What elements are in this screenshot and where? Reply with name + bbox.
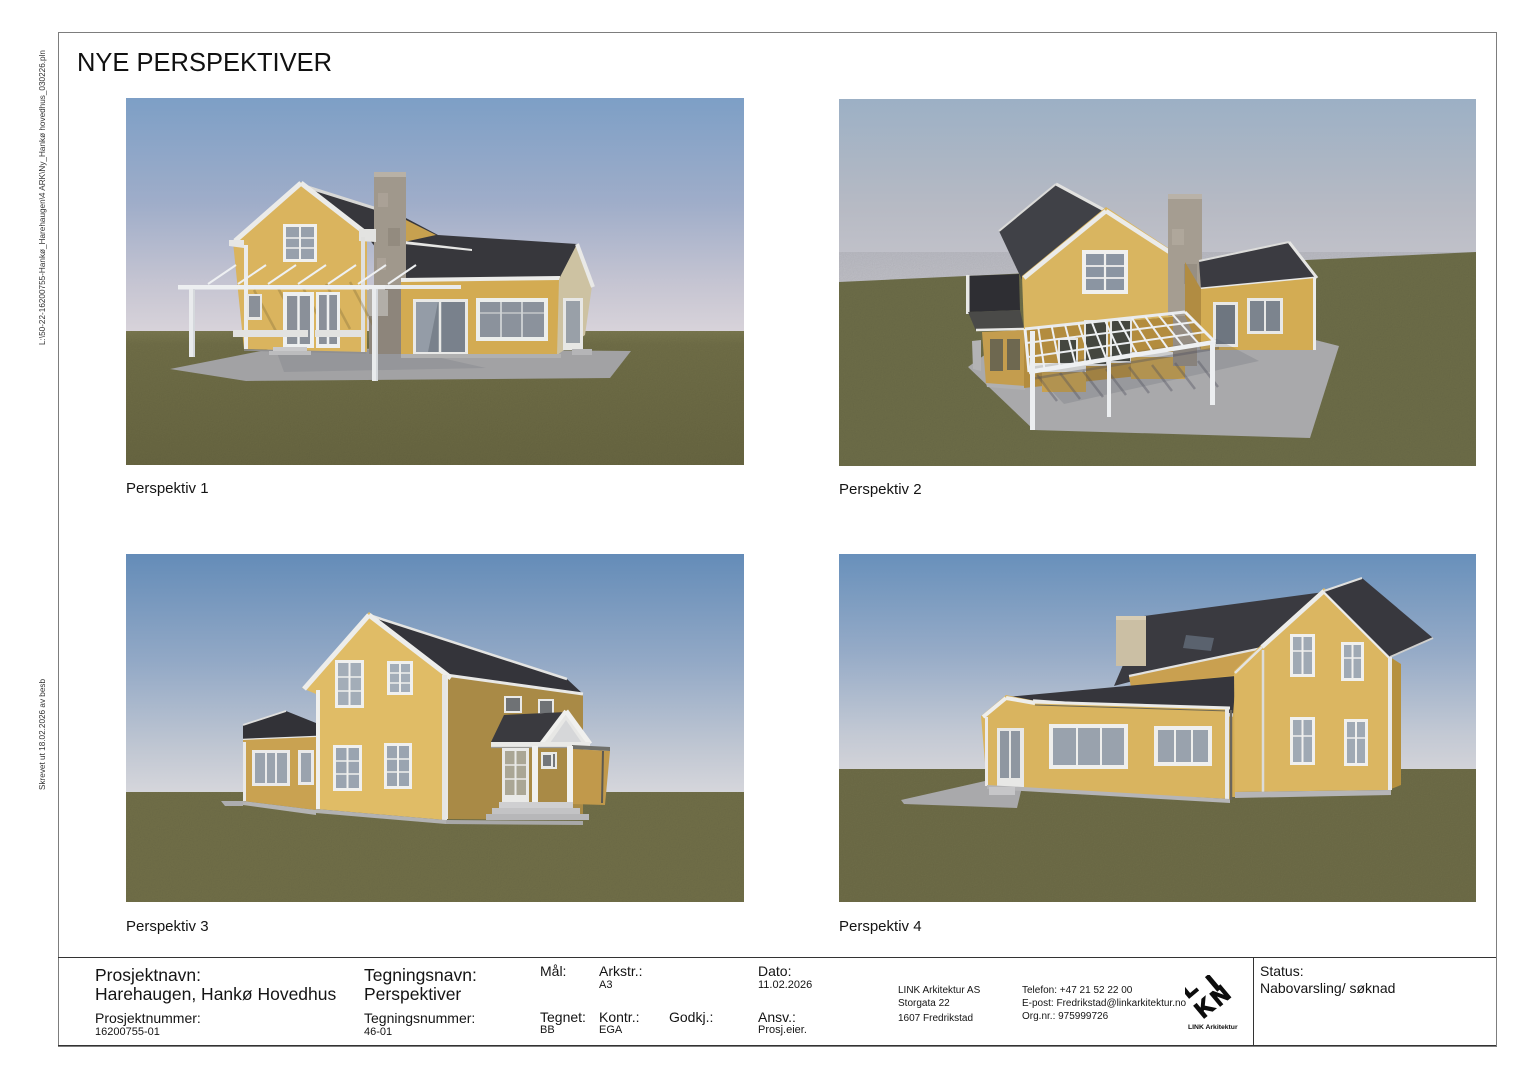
svg-text:LINK Arkitektur: LINK Arkitektur: [1188, 1024, 1238, 1031]
